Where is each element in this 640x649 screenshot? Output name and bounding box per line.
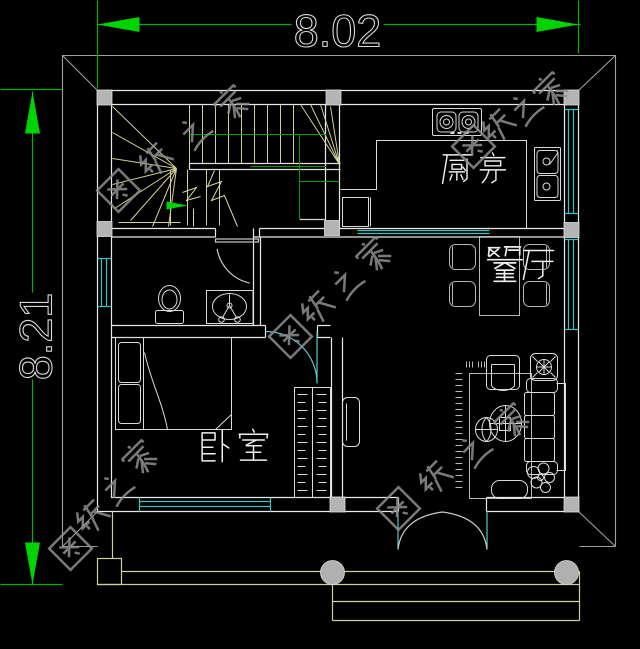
- svg-text:8.21: 8.21: [11, 293, 62, 381]
- svg-text:8.02: 8.02: [294, 6, 382, 57]
